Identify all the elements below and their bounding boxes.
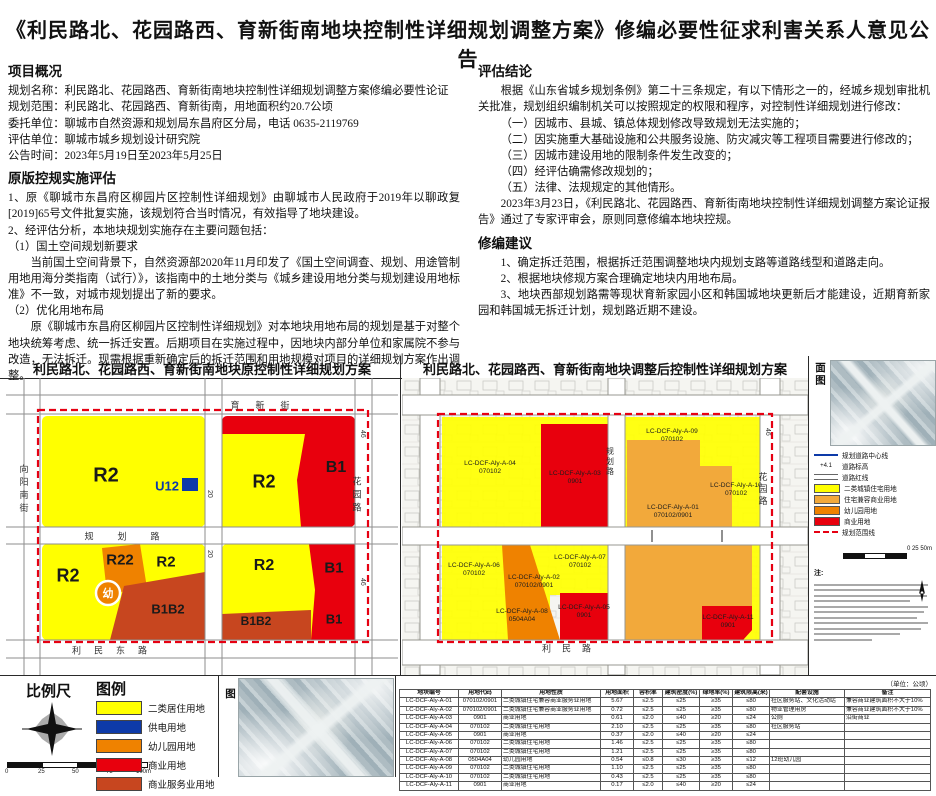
conclusion-paragraph: 2023年3月23日，《利民路北、花园路西、育新街南地块控制性详细规划调整方案论…	[478, 196, 930, 228]
eval-paragraph: 当前国土空间背景下，自然资源部2020年11月印发了《国土空间调查、规划、用途管…	[8, 255, 460, 303]
legend-row: 商业服务业用地	[96, 777, 215, 791]
note-line	[814, 600, 910, 602]
zone-label-b1: B1	[326, 459, 346, 477]
column-header: 建筑密度(%)	[663, 690, 700, 698]
table-row: LC-DCF-Aly-A-09070102二类城镇住宅用地1.10≤2.5≤25…	[400, 765, 931, 773]
legend-row: 道路红线	[814, 473, 934, 481]
parcel-label-a05: LC-DCF-Aly-A-050901	[558, 604, 610, 620]
road-width-46: 46	[359, 430, 366, 438]
table-row: LC-DCF-Aly-A-02070102/0901二类城镇住宅兼容商业服务业用…	[400, 706, 931, 714]
parcel-label-a10: LC-DCF-Aly-A-10070102	[710, 482, 762, 498]
north-arrow-icon	[914, 580, 930, 602]
zone-label-r2: R2	[254, 557, 274, 575]
column-header: 用地代码	[459, 690, 502, 698]
indicator-table-panel: （单位：公顷） 地块编号用地代码用地性质用地面积容积率建筑密度(%)绿地率(%)…	[399, 677, 934, 776]
mini-scalebar	[844, 553, 932, 559]
kindergarten-swatch	[96, 739, 142, 753]
table-row: LC-DCF-Aly-A-080504A04幼儿园用地0.54≤0.8≤30≥3…	[400, 757, 931, 765]
compass-rose-icon	[22, 700, 82, 758]
street-name-west: 向阳南街	[18, 464, 31, 516]
table-row: LC-DCF-Aly-A-050901商业用地0.37≤2.0≤40≥20≤24	[400, 731, 931, 739]
original-plan-map-title: 利民路北、花园路西、育新街南地块原控制性详细规划方案	[6, 359, 398, 376]
side-legend: 规划道路中心线 +4.1道路标高 道路红线 二类城镇住宅用地 住宅兼容商业用地 …	[814, 448, 934, 539]
table-row: LC-DCF-Aly-A-07070102二类城镇住宅用地1.21≤2.5≤25…	[400, 748, 931, 756]
zone-label-r2: R2	[252, 472, 275, 493]
table-row: LC-DCF-Aly-A-04070102二类城镇住宅用地2.10≤2.5≤25…	[400, 723, 931, 731]
overview-line: 评估单位：聊城市城乡规划设计研究院	[8, 132, 460, 148]
column-header: 用地面积	[601, 690, 634, 698]
elevation-symbol: +4.1	[814, 463, 838, 469]
parcel-label-a01: LC-DCF-Aly-A-01070102/0901	[647, 504, 699, 520]
legend-row: 规划道路中心线	[814, 451, 934, 459]
table-row: LC-DCF-Aly-A-030901商业用地0.61≤2.0≤40≥20≤24…	[400, 715, 931, 723]
legend-row: 幼儿园用地	[96, 739, 215, 753]
kindergarten-label: 幼	[103, 585, 114, 601]
legend-row: 商业用地	[814, 517, 934, 525]
mini-scalebar-label: 0 25 50m	[814, 546, 932, 552]
overview-heading: 项目概况	[8, 62, 460, 81]
scale-tick: 50	[72, 769, 79, 775]
zone-label-b1: B1	[326, 612, 343, 627]
suggestion-item: 2、根据地块修规方案合理确定地块内用地布局。	[478, 271, 930, 287]
scale-tick: 25	[38, 769, 45, 775]
parcel-label-a06: LC-DCF-Aly-A-06070102	[448, 562, 500, 578]
kindergarten-swatch	[814, 506, 840, 515]
redline-symbol	[814, 474, 838, 480]
parcel-label-a07: LC-DCF-Aly-A-07070102	[554, 554, 606, 570]
street-name-huayuan: 花园路	[351, 477, 364, 516]
indicator-table-body: LC-DCF-Aly-A-01070102/0901二类城镇住宅兼容商业服务业用…	[400, 698, 931, 790]
note-line	[814, 628, 921, 630]
note-line	[814, 617, 917, 619]
suggestion-item: 1、确定拆迁范围，根据拆迁范围调整地块内规划支路等道路线型和道路走向。	[478, 255, 930, 271]
zone-label-r2: R2	[156, 554, 175, 571]
note-line	[814, 611, 924, 613]
legend-row: 供电用地	[96, 720, 215, 734]
note-line	[814, 589, 922, 591]
note-line	[814, 595, 927, 597]
adjusted-plan-map-canvas	[402, 378, 808, 675]
original-plan-map-canvas	[6, 378, 398, 675]
conclusion-item: （四）经评估确需修改规划的；	[478, 164, 930, 180]
zone-label-r22: R22	[106, 552, 134, 569]
eval-paragraph: 2、经评估分析，本地块规划实施存在主要问题包括：	[8, 223, 460, 239]
eval-heading: 原版控规实施评估	[8, 169, 460, 188]
legend-row: 二类城镇住宅用地	[814, 484, 934, 492]
parcel-label-a11: LC-DCF-Aly-A-110901	[702, 614, 753, 630]
parcel-r2-northwest	[42, 416, 205, 527]
table-header-row: 地块编号用地代码用地性质用地面积容积率建筑密度(%)绿地率(%)建筑限高(米)配…	[400, 690, 931, 698]
parcel-label-a08: LC-DCF-Aly-A-080504A04	[496, 608, 548, 624]
divider	[218, 675, 219, 777]
note-line	[814, 606, 928, 608]
table-row: LC-DCF-Aly-A-10070102二类城镇住宅用地0.43≤2.5≤25…	[400, 773, 931, 781]
street-name-huayuan: 花园路	[757, 472, 770, 508]
column-header: 地块编号	[400, 690, 459, 698]
divider	[395, 675, 396, 777]
legend-row: 规划范围线	[814, 528, 934, 536]
table-unit-note: （单位：公顷）	[401, 678, 932, 688]
note-line	[814, 622, 928, 624]
column-header: 配套设施	[770, 690, 845, 698]
legend-row: 商业用地	[96, 758, 215, 772]
residential-swatch	[814, 484, 840, 493]
residential-swatch	[96, 701, 142, 715]
scale-heading: 比例尺	[26, 680, 71, 701]
overview-line: 委托单位：聊城市自然资源和规划局东昌府区分局，电话 0635-2119769	[8, 116, 460, 132]
zone-label-u12: U12	[155, 479, 179, 494]
eval-paragraph: （1）国土空间规划新要求	[8, 239, 460, 255]
eval-paragraph: 1、原《聊城市东昌府区柳园片区控制性详细规划》由聊城市人民政府于2019年以聊政…	[8, 190, 460, 222]
birdview-render-image	[238, 678, 394, 777]
street-name-guihua: 规划路	[605, 447, 616, 477]
road-width-20: 20	[206, 490, 213, 498]
public-notice-poster: { "title": "《利民路北、花园路西、育新街南地块控制性详细规划调整方案…	[0, 0, 936, 777]
column-header: 备注	[845, 690, 931, 698]
overview-line: 公告时间：2023年5月19日至2023年5月25日	[8, 148, 460, 164]
scale-and-legend-panel: 比例尺 0 25 50 75 100m 图例 二类居住用地 供电用地 幼儿园用地…	[0, 676, 218, 777]
suggestion-item: 3、地块西部规划路需等现状育新家园小区和韩国城地块更新后才能建设，近期育新家园和…	[478, 287, 930, 319]
original-plan-map: R2 U12 R2 B1 R2 R22 R2 幼 B1B2 R2 B1 B1B2…	[6, 378, 398, 675]
conclusion-item: （二）因实施重大基础设施和公共服务设施、防灾减灾等工程项目需要进行修改的；	[478, 132, 930, 148]
conclusion-item: （三）因城市建设用地的限制条件发生改变的；	[478, 148, 930, 164]
zone-label-r2: R2	[56, 566, 79, 587]
street-name-guihua: 规划路	[84, 530, 183, 543]
legend-row: +4.1道路标高	[814, 462, 934, 470]
legend-row: 幼儿园用地	[814, 506, 934, 514]
divider	[400, 356, 401, 675]
project-overview-section: 项目概况 规划名称：利民路北、花园路西、育新街南地块控制性详细规划调整方案修编必…	[8, 57, 460, 384]
street-name-yuxin: 育新街	[230, 399, 305, 412]
conclusion-item: （一）因城市、县城、镇总体规划修改导致规划无法实施的；	[478, 116, 930, 132]
indicator-table-head: 地块编号用地代码用地性质用地面积容积率建筑密度(%)绿地率(%)建筑限高(米)配…	[400, 690, 931, 698]
column-header: 建筑限高(米)	[733, 690, 770, 698]
parcel-label-a09: LC-DCF-Aly-A-09070102	[646, 428, 698, 444]
indicator-table: 地块编号用地代码用地性质用地面积容积率建筑密度(%)绿地率(%)建筑限高(米)配…	[399, 689, 931, 791]
parcel-label-a03: LC-DCF-Aly-A-030901	[549, 470, 601, 486]
adjusted-plan-map-title: 利民路北、花园路西、育新街南地块调整后控制性详细规划方案	[402, 359, 808, 376]
adjusted-plan-map: LC-DCF-Aly-A-04070102 LC-DCF-Aly-A-03090…	[402, 378, 808, 675]
overview-line: 规划范围：利民路北、花园路西、育新街南，用地面积约20.7公顷	[8, 99, 460, 115]
overview-line: 规划名称：利民路北、花园路西、育新街南地块控制性详细规划调整方案修编必要性论证	[8, 83, 460, 99]
eval-paragraph: （2）优化用地布局	[8, 303, 460, 319]
note-line	[814, 639, 872, 641]
note-line	[814, 633, 900, 635]
table-row: LC-DCF-Aly-A-01070102/0901二类城镇住宅兼容商业服务业用…	[400, 698, 931, 706]
road-width-46: 46	[764, 428, 771, 436]
zone-label-r2: R2	[93, 465, 119, 488]
conclusion-section: 评估结论 根据《山东省城乡规划条例》第二十三条规定，有以下情形之一的，经城乡规划…	[478, 57, 930, 319]
notes-block: 0 25 50m 注:	[814, 546, 932, 644]
conclusion-item: （五）法律、法规规定的其他情形。	[478, 180, 930, 196]
commercial-swatch	[814, 517, 840, 526]
table-row: LC-DCF-Aly-A-110901商业用地0.17≤2.0≤40≥20≤24	[400, 782, 931, 790]
legend-row: 二类居住用地	[96, 701, 215, 715]
conclusion-heading: 评估结论	[478, 62, 930, 81]
road-width-46: 46	[359, 578, 366, 586]
zone-label-b1b2: B1B2	[241, 614, 272, 628]
notes-heading: 注:	[814, 570, 823, 577]
note-line	[814, 584, 928, 586]
street-name-limindong: 利民东路	[72, 644, 160, 657]
parcel-label-a04: LC-DCF-Aly-A-04070102	[464, 460, 516, 476]
zone-label-b1b2: B1B2	[151, 602, 184, 617]
street-name-limin: 利民路	[542, 642, 602, 655]
divider	[808, 356, 809, 675]
centerline-symbol	[814, 454, 838, 456]
column-header: 绿地率(%)	[700, 690, 733, 698]
boundary-symbol	[814, 531, 838, 533]
scale-tick: 0	[5, 769, 8, 775]
table-row: LC-DCF-Aly-A-06070102二类城镇住宅用地1.46≤2.5≤25…	[400, 740, 931, 748]
power-swatch	[96, 720, 142, 734]
parcel-label-a02: LC-DCF-Aly-A-02070102/0901	[508, 574, 560, 590]
commercial-swatch	[96, 758, 142, 772]
zone-label-b1: B1	[324, 560, 343, 577]
column-header: 容积率	[634, 690, 663, 698]
side-panel: 城市设计总平面图 规划道路中心线 +4.1道路标高 道路红线 二类城镇住宅用地 …	[810, 356, 936, 675]
parcel-u12-substation	[182, 478, 198, 491]
legend-row: 住宅兼容商业用地	[814, 495, 934, 503]
road-width-20: 20	[206, 550, 213, 558]
masterplan-render-image	[830, 360, 936, 446]
map-legend: 二类居住用地 供电用地 幼儿园用地 商业用地 商业服务业用地	[96, 696, 215, 796]
column-header: 用地性质	[502, 690, 601, 698]
mixed-use-swatch	[814, 495, 840, 504]
suggestion-heading: 修编建议	[478, 234, 930, 253]
conclusion-paragraph: 根据《山东省城乡规划条例》第二十三条规定，有以下情形之一的，经城乡规划审批机关批…	[478, 83, 930, 115]
commercial-service-swatch	[96, 777, 142, 791]
